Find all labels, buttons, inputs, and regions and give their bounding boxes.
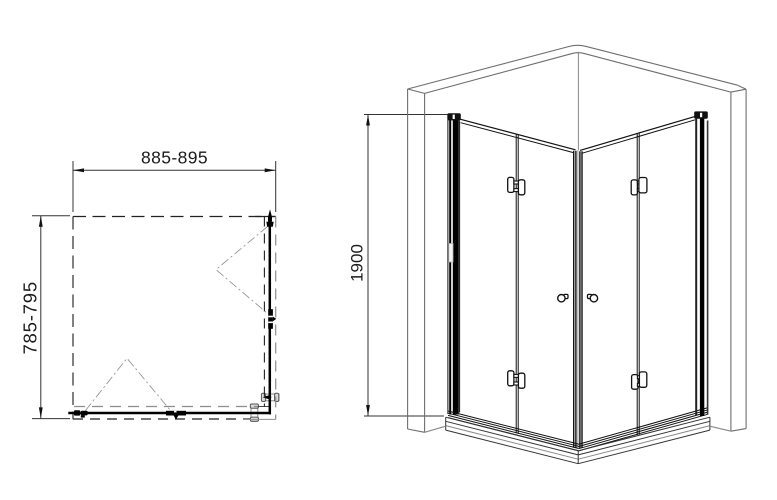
svg-text:785-795: 785-795: [20, 281, 41, 355]
svg-text:885-895: 885-895: [141, 147, 208, 167]
svg-text:1900: 1900: [348, 244, 367, 282]
